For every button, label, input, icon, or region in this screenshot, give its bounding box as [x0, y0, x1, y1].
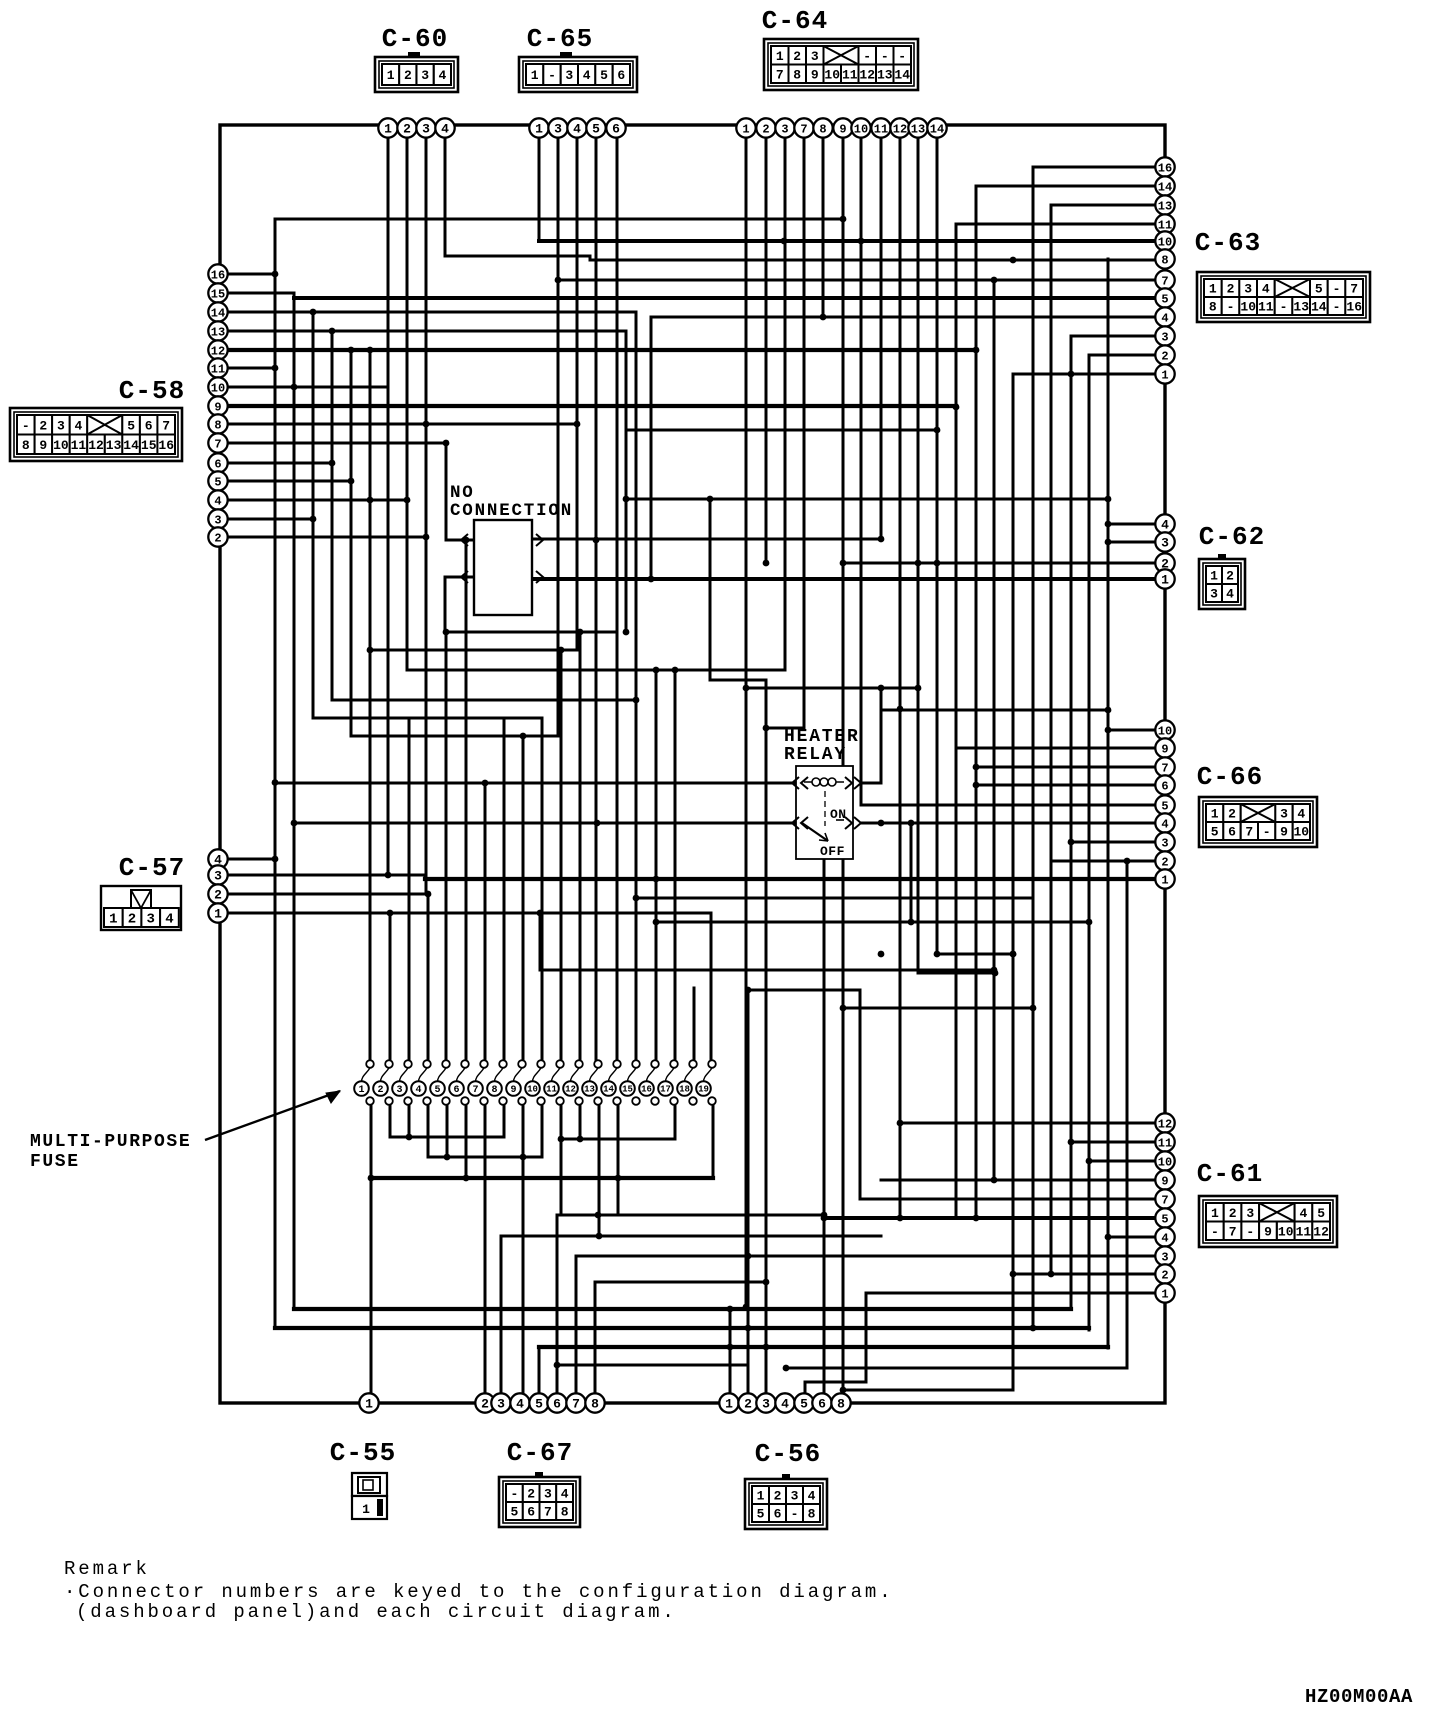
svg-text:14: 14 [123, 438, 139, 453]
svg-text:11: 11 [1296, 1224, 1312, 1239]
svg-text:5: 5 [434, 1085, 440, 1096]
svg-text:2: 2 [128, 912, 136, 928]
svg-text:3: 3 [422, 122, 430, 137]
svg-text:3: 3 [214, 513, 221, 527]
svg-text:1: 1 [1210, 569, 1218, 584]
svg-text:RELAY: RELAY [784, 745, 847, 765]
svg-text:4: 4 [1297, 807, 1305, 822]
svg-text:7: 7 [1161, 1193, 1168, 1207]
svg-text:7: 7 [472, 1085, 478, 1096]
svg-text:6: 6 [553, 1397, 561, 1412]
svg-text:1: 1 [757, 1489, 765, 1504]
svg-text:HZ00M00AA: HZ00M00AA [1305, 1686, 1413, 1708]
svg-text:6: 6 [1228, 825, 1236, 840]
svg-text:4: 4 [573, 122, 581, 137]
svg-text:19: 19 [698, 1085, 709, 1095]
svg-text:13: 13 [584, 1085, 595, 1095]
svg-text:C-56: C-56 [755, 1439, 821, 1469]
svg-text:1: 1 [535, 122, 543, 137]
svg-text:13: 13 [106, 438, 122, 453]
svg-text:7: 7 [1245, 825, 1253, 840]
svg-text:14: 14 [894, 67, 910, 82]
svg-text:3: 3 [811, 49, 819, 64]
svg-text:5: 5 [757, 1507, 765, 1522]
svg-text:3: 3 [421, 68, 429, 83]
svg-text:13: 13 [877, 67, 893, 82]
svg-text:1: 1 [725, 1397, 733, 1412]
svg-text:2: 2 [214, 888, 222, 903]
svg-text:8: 8 [22, 438, 30, 453]
svg-text:1: 1 [358, 1085, 364, 1096]
svg-text:3: 3 [791, 1489, 799, 1504]
svg-text:3: 3 [1280, 807, 1288, 822]
svg-text:6: 6 [527, 1505, 535, 1520]
svg-text:5: 5 [214, 475, 221, 489]
svg-text:4: 4 [561, 1487, 569, 1502]
svg-text:C-67: C-67 [507, 1438, 573, 1468]
svg-text:11: 11 [546, 1085, 557, 1095]
svg-text:15: 15 [622, 1085, 633, 1095]
svg-text:6: 6 [1161, 779, 1168, 793]
svg-text:(dashboard panel)and each circ: (dashboard panel)and each circuit diagra… [76, 1601, 677, 1623]
svg-text:8: 8 [1209, 300, 1217, 315]
svg-text:C-63: C-63 [1195, 228, 1261, 258]
svg-text:-: - [863, 49, 871, 64]
svg-text:10: 10 [527, 1085, 538, 1095]
svg-text:5: 5 [1161, 292, 1168, 306]
svg-text:5: 5 [1211, 825, 1219, 840]
svg-text:9: 9 [839, 122, 846, 136]
svg-text:13: 13 [911, 122, 925, 136]
svg-text:6: 6 [774, 1507, 782, 1522]
svg-text:1: 1 [742, 122, 749, 136]
svg-text:4: 4 [516, 1397, 524, 1412]
svg-text:4: 4 [1299, 1206, 1307, 1221]
svg-text:9: 9 [510, 1085, 516, 1096]
svg-text:3: 3 [396, 1085, 402, 1096]
svg-text:7: 7 [214, 437, 221, 451]
svg-text:3: 3 [554, 122, 562, 137]
svg-text:4: 4 [583, 68, 591, 83]
svg-text:7: 7 [1161, 274, 1168, 288]
svg-text:1: 1 [1161, 573, 1169, 588]
svg-text:C-60: C-60 [382, 24, 448, 54]
svg-text:9: 9 [1280, 825, 1288, 840]
svg-text:2: 2 [1161, 1268, 1168, 1282]
svg-text:11: 11 [1158, 1136, 1172, 1150]
svg-text:C-62: C-62 [1199, 522, 1265, 552]
svg-text:2: 2 [1161, 349, 1168, 363]
svg-text:3: 3 [1161, 836, 1168, 850]
svg-text:3: 3 [544, 1487, 552, 1502]
svg-text:12: 12 [859, 67, 875, 82]
svg-text:7: 7 [1161, 761, 1168, 775]
svg-text:C-61: C-61 [1197, 1159, 1263, 1189]
svg-text:5: 5 [535, 1397, 543, 1412]
svg-text:2: 2 [1161, 855, 1168, 869]
svg-text:-: - [791, 1507, 799, 1522]
svg-text:C-55: C-55 [330, 1438, 396, 1468]
svg-text:12: 12 [88, 438, 104, 453]
svg-text:-: - [1211, 1224, 1219, 1239]
svg-text:16: 16 [641, 1085, 652, 1095]
svg-text:4: 4 [415, 1085, 421, 1096]
svg-text:4: 4 [781, 1397, 789, 1412]
svg-text:11: 11 [211, 362, 225, 376]
svg-text:6: 6 [612, 122, 620, 137]
svg-text:2: 2 [214, 531, 221, 545]
svg-text:-: - [1263, 825, 1271, 840]
svg-text:10: 10 [854, 122, 868, 136]
svg-text:11: 11 [1258, 300, 1274, 315]
svg-text:3: 3 [1246, 1206, 1254, 1221]
svg-text:3: 3 [1161, 536, 1169, 551]
svg-text:9: 9 [1161, 1174, 1168, 1188]
svg-text:5: 5 [592, 122, 600, 137]
svg-text:1: 1 [1161, 1287, 1168, 1301]
svg-text:14: 14 [603, 1085, 614, 1095]
svg-text:10: 10 [824, 67, 840, 82]
svg-text:8: 8 [561, 1505, 569, 1520]
svg-text:-: - [1227, 300, 1235, 315]
svg-text:-: - [881, 49, 889, 64]
svg-text:7: 7 [162, 418, 170, 433]
svg-text:11: 11 [842, 67, 858, 82]
svg-text:3: 3 [1161, 330, 1168, 344]
svg-text:3: 3 [497, 1397, 505, 1412]
svg-text:2: 2 [403, 122, 411, 137]
svg-text:8: 8 [808, 1507, 816, 1522]
svg-text:C-58: C-58 [119, 376, 185, 406]
svg-text:NO: NO [450, 483, 475, 503]
svg-text:4: 4 [808, 1489, 816, 1504]
svg-text:6: 6 [145, 418, 153, 433]
svg-text:13: 13 [1293, 300, 1309, 315]
svg-text:-: - [548, 68, 556, 83]
svg-text:12: 12 [211, 344, 225, 358]
svg-text:2: 2 [774, 1489, 782, 1504]
svg-text:3: 3 [1161, 1250, 1168, 1264]
svg-text:2: 2 [404, 68, 412, 83]
svg-text:4: 4 [1161, 311, 1168, 325]
svg-text:2: 2 [793, 49, 801, 64]
svg-text:4: 4 [1226, 587, 1234, 602]
svg-text:C-66: C-66 [1197, 762, 1263, 792]
svg-text:8: 8 [491, 1085, 497, 1096]
svg-text:11: 11 [874, 122, 888, 136]
svg-text:12: 12 [1158, 1117, 1172, 1131]
svg-text:4: 4 [74, 418, 82, 433]
svg-text:5: 5 [1315, 282, 1323, 297]
svg-text:2: 2 [762, 122, 769, 136]
svg-text:12: 12 [893, 122, 907, 136]
svg-text:8: 8 [837, 1397, 845, 1412]
svg-text:2: 2 [527, 1487, 535, 1502]
svg-text:Remark: Remark [64, 1558, 150, 1580]
svg-text:2: 2 [377, 1085, 383, 1096]
svg-text:17: 17 [660, 1085, 671, 1095]
svg-text:14: 14 [1311, 300, 1327, 315]
svg-text:3: 3 [1210, 587, 1218, 602]
svg-text:16: 16 [211, 268, 225, 282]
svg-text:C-57: C-57 [119, 853, 185, 883]
svg-text:12: 12 [565, 1085, 576, 1095]
svg-text:3: 3 [57, 418, 65, 433]
svg-text:10: 10 [1240, 300, 1256, 315]
svg-text:5: 5 [800, 1397, 808, 1412]
svg-text:3: 3 [214, 869, 222, 884]
svg-text:13: 13 [1158, 199, 1172, 213]
svg-text:1: 1 [1161, 368, 1168, 382]
svg-text:·Connector numbers are keyed t: ·Connector numbers are keyed to the conf… [64, 1581, 894, 1603]
svg-text:7: 7 [800, 122, 807, 136]
svg-text:4: 4 [214, 494, 221, 508]
svg-text:1: 1 [365, 1397, 373, 1412]
svg-text:8: 8 [793, 67, 801, 82]
svg-text:13: 13 [211, 325, 225, 339]
svg-text:-: - [1246, 1224, 1254, 1239]
svg-text:10: 10 [1278, 1224, 1294, 1239]
svg-text:C-64: C-64 [762, 6, 828, 36]
svg-text:5: 5 [600, 68, 608, 83]
svg-text:-: - [898, 49, 906, 64]
svg-text:1: 1 [1161, 873, 1168, 887]
svg-text:6: 6 [214, 457, 221, 471]
svg-text:7: 7 [1350, 282, 1358, 297]
svg-text:14: 14 [930, 122, 944, 136]
svg-text:1: 1 [109, 912, 117, 928]
svg-text:5: 5 [1161, 1212, 1168, 1226]
svg-text:2: 2 [39, 418, 47, 433]
svg-text:1: 1 [1209, 282, 1217, 297]
svg-text:11: 11 [71, 438, 87, 453]
svg-text:2: 2 [1229, 1206, 1237, 1221]
svg-text:3: 3 [1244, 282, 1252, 297]
svg-text:2: 2 [1227, 282, 1235, 297]
svg-text:14: 14 [211, 306, 225, 320]
svg-text:9: 9 [214, 400, 221, 414]
svg-text:-: - [22, 418, 30, 433]
svg-text:8: 8 [819, 122, 826, 136]
svg-text:3: 3 [565, 68, 573, 83]
svg-text:18: 18 [679, 1085, 690, 1095]
svg-text:8: 8 [214, 418, 221, 432]
svg-text:6: 6 [818, 1397, 826, 1412]
svg-text:9: 9 [39, 438, 47, 453]
svg-text:5: 5 [1317, 1206, 1325, 1221]
svg-text:1: 1 [531, 68, 539, 83]
svg-text:-: - [1280, 300, 1288, 315]
svg-text:4: 4 [1161, 518, 1169, 533]
svg-text:4: 4 [165, 912, 173, 928]
svg-text:1: 1 [387, 68, 395, 83]
svg-text:C-65: C-65 [527, 24, 593, 54]
svg-text:HEATER: HEATER [784, 727, 860, 747]
svg-text:3: 3 [781, 122, 788, 136]
svg-text:-: - [1333, 282, 1341, 297]
svg-text:5: 5 [127, 418, 135, 433]
svg-text:1: 1 [776, 49, 784, 64]
svg-text:7: 7 [776, 67, 784, 82]
svg-text:2: 2 [744, 1397, 752, 1412]
svg-text:4: 4 [438, 68, 446, 83]
svg-text:1: 1 [1211, 1206, 1219, 1221]
svg-text:1: 1 [362, 1502, 370, 1517]
svg-text:10: 10 [211, 381, 225, 395]
svg-text:1: 1 [214, 907, 222, 922]
svg-text:-: - [510, 1487, 518, 1502]
svg-text:9: 9 [1264, 1224, 1272, 1239]
svg-text:-: - [1333, 300, 1341, 315]
svg-text:3: 3 [146, 912, 154, 928]
svg-text:2: 2 [1228, 807, 1236, 822]
svg-text:FUSE: FUSE [30, 1152, 80, 1172]
svg-text:8: 8 [591, 1397, 599, 1412]
svg-text:8: 8 [1161, 253, 1168, 267]
svg-text:15: 15 [141, 438, 157, 453]
svg-text:5: 5 [1161, 799, 1168, 813]
svg-text:16: 16 [158, 438, 174, 453]
svg-text:16: 16 [1346, 300, 1362, 315]
svg-text:14: 14 [1158, 180, 1172, 194]
svg-text:7: 7 [544, 1505, 552, 1520]
svg-text:3: 3 [762, 1397, 770, 1412]
svg-text:7: 7 [572, 1397, 580, 1412]
svg-text:4: 4 [441, 122, 449, 137]
svg-text:10: 10 [1158, 724, 1172, 738]
svg-text:4: 4 [1161, 817, 1168, 831]
svg-text:6: 6 [617, 68, 625, 83]
svg-text:12: 12 [1313, 1224, 1329, 1239]
svg-text:15: 15 [211, 287, 225, 301]
svg-text:OFF: OFF [820, 844, 845, 859]
svg-text:6: 6 [453, 1085, 459, 1096]
svg-text:MULTI-PURPOSE: MULTI-PURPOSE [30, 1132, 191, 1152]
svg-text:4: 4 [1161, 1231, 1168, 1245]
svg-text:16: 16 [1158, 161, 1172, 175]
svg-text:9: 9 [1161, 742, 1168, 756]
svg-text:10: 10 [1293, 825, 1309, 840]
svg-text:10: 10 [53, 438, 69, 453]
svg-text:5: 5 [510, 1505, 518, 1520]
svg-text:4: 4 [1262, 282, 1270, 297]
svg-text:10: 10 [1158, 1155, 1172, 1169]
svg-text:9: 9 [811, 67, 819, 82]
svg-text:CONNECTION: CONNECTION [450, 501, 573, 521]
svg-text:2: 2 [481, 1397, 489, 1412]
svg-text:1: 1 [384, 122, 392, 137]
svg-text:7: 7 [1229, 1224, 1237, 1239]
svg-text:2: 2 [1226, 569, 1234, 584]
svg-text:1: 1 [1211, 807, 1219, 822]
svg-text:10: 10 [1158, 235, 1172, 249]
